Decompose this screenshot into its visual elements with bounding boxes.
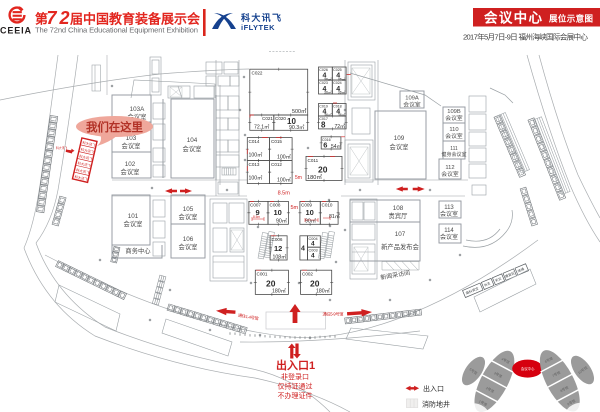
svg-text:103A: 103A — [130, 106, 146, 113]
svg-text:106: 106 — [183, 236, 194, 243]
svg-text:C022: C022 — [252, 71, 263, 76]
svg-text:8.5m: 8.5m — [278, 191, 291, 197]
svg-text:会议室: 会议室 — [440, 233, 458, 241]
svg-text:商务中心: 商务中心 — [125, 246, 151, 255]
svg-text:C010: C010 — [322, 203, 333, 208]
svg-text:36㎡: 36㎡ — [324, 90, 332, 95]
svg-text:10: 10 — [274, 208, 282, 217]
svg-text:2017年5月7日-9日 福州海峡国际会展中心: 2017年5月7日-9日 福州海峡国际会展中心 — [463, 32, 588, 42]
svg-text:康复区: 康复区 — [504, 270, 516, 279]
svg-text:C012: C012 — [271, 162, 282, 167]
svg-text:展位示意图: 展位示意图 — [548, 14, 593, 24]
svg-text:5m: 5m — [295, 175, 302, 181]
svg-text:500㎡: 500㎡ — [292, 107, 307, 115]
svg-text:104: 104 — [187, 137, 198, 144]
svg-text:C009: C009 — [301, 203, 312, 208]
svg-text:113: 113 — [444, 205, 454, 211]
svg-text:10: 10 — [306, 208, 314, 217]
svg-text:105: 105 — [183, 206, 194, 213]
svg-text:180㎡: 180㎡ — [316, 287, 331, 295]
svg-text:非登录口: 非登录口 — [281, 372, 309, 381]
svg-text:4: 4 — [311, 241, 315, 248]
svg-text:会议室: 会议室 — [124, 219, 143, 228]
svg-text:C008: C008 — [270, 203, 281, 208]
svg-text:36㎡: 36㎡ — [338, 112, 346, 117]
svg-text:仅持证通过: 仅持证通过 — [278, 382, 313, 391]
svg-text:36㎡: 36㎡ — [338, 90, 346, 95]
svg-text:112: 112 — [445, 165, 454, 171]
svg-text:8.5m: 8.5m — [253, 215, 260, 219]
svg-text:4: 4 — [311, 253, 315, 260]
svg-text:科大讯飞: 科大讯飞 — [56, 146, 67, 150]
svg-text:100㎡: 100㎡ — [277, 176, 292, 184]
svg-text:54㎡: 54㎡ — [331, 143, 342, 150]
svg-text:会议中心: 会议中心 — [521, 366, 535, 371]
svg-text:180㎡: 180㎡ — [272, 287, 287, 295]
svg-text:会议中心: 会议中心 — [484, 10, 543, 26]
svg-text:72㎡: 72㎡ — [335, 123, 346, 130]
svg-text:C021: C021 — [262, 116, 273, 121]
svg-text:81㎡: 81㎡ — [329, 212, 341, 220]
svg-text:会议室: 会议室 — [445, 114, 463, 122]
svg-text:C007: C007 — [250, 203, 261, 208]
svg-text:180㎡: 180㎡ — [307, 173, 322, 181]
svg-text:C011: C011 — [308, 158, 319, 163]
svg-text:109: 109 — [394, 135, 405, 142]
svg-text:C023: C023 — [319, 81, 328, 85]
svg-text:107: 107 — [395, 231, 406, 238]
svg-text:5m: 5m — [291, 205, 299, 211]
svg-text:消防地井: 消防地井 — [422, 400, 450, 409]
svg-text:4: 4 — [301, 246, 305, 253]
svg-text:The 72nd China Educational Equ: The 72nd China Educational Equipment Exh… — [35, 26, 198, 35]
svg-text:会议室: 会议室 — [440, 210, 458, 218]
svg-text:90㎡: 90㎡ — [305, 217, 317, 225]
svg-text:90.3㎡: 90.3㎡ — [289, 123, 305, 131]
svg-text:C006: C006 — [272, 237, 283, 242]
svg-text:会议室: 会议室 — [179, 212, 198, 221]
svg-text:101: 101 — [128, 213, 139, 220]
svg-text:C015: C015 — [271, 139, 282, 144]
svg-text:健身会议室: 健身会议室 — [441, 151, 466, 158]
svg-text:102: 102 — [125, 161, 136, 168]
svg-text:会议室: 会议室 — [445, 132, 463, 140]
svg-text:会议室: 会议室 — [121, 167, 140, 176]
svg-text:108: 108 — [393, 205, 404, 212]
svg-text:108㎡: 108㎡ — [273, 253, 288, 261]
svg-text:110: 110 — [449, 127, 458, 133]
svg-text:20: 20 — [266, 279, 276, 289]
svg-text:会议室: 会议室 — [183, 144, 202, 153]
svg-text:通往5-9号馆: 通往5-9号馆 — [323, 311, 344, 318]
svg-text:我们在这里: 我们在这里 — [86, 120, 144, 134]
svg-text:8: 8 — [321, 120, 326, 129]
svg-text:不办理证件: 不办理证件 — [278, 391, 313, 400]
svg-text:100㎡: 100㎡ — [277, 153, 292, 161]
svg-text:届中国教育装备展示会: 届中国教育装备展示会 — [70, 12, 201, 27]
svg-text:C024: C024 — [333, 81, 342, 85]
svg-text:114: 114 — [444, 228, 454, 234]
svg-text:100㎡: 100㎡ — [249, 151, 264, 159]
svg-text:C001: C001 — [257, 272, 268, 277]
svg-text:科大讯飞: 科大讯飞 — [241, 12, 281, 23]
svg-text:会议室: 会议室 — [390, 142, 409, 151]
svg-text:会议室: 会议室 — [403, 101, 421, 109]
svg-text:会议室: 会议室 — [441, 170, 459, 178]
svg-text:C002: C002 — [302, 272, 313, 277]
svg-text:出入口: 出入口 — [423, 384, 444, 393]
svg-text:C013: C013 — [249, 162, 260, 167]
svg-text:C014: C014 — [249, 139, 260, 144]
svg-text:贵宾厅: 贵宾厅 — [389, 211, 408, 220]
svg-text:新产品发布会: 新产品发布会 — [381, 242, 419, 251]
svg-text:20: 20 — [318, 165, 328, 175]
svg-text:109A: 109A — [405, 96, 419, 102]
svg-text:通往1-4号馆: 通往1-4号馆 — [237, 312, 259, 323]
svg-text:会议室: 会议室 — [122, 141, 141, 150]
svg-text:6: 6 — [323, 140, 327, 149]
svg-text:CEEIA: CEEIA — [0, 26, 32, 36]
svg-text:iFLYTEK: iFLYTEK — [241, 23, 275, 32]
svg-text:20: 20 — [310, 279, 320, 289]
svg-text:出入口1: 出入口1 — [276, 358, 315, 372]
svg-text:C025: C025 — [333, 68, 342, 72]
svg-text:100㎡: 100㎡ — [249, 174, 264, 182]
svg-text:109B: 109B — [447, 109, 461, 115]
svg-text:会议室: 会议室 — [179, 242, 198, 251]
svg-text:C020: C020 — [275, 116, 286, 121]
svg-text:新闻采访间: 新闻采访间 — [380, 268, 411, 281]
svg-text:12: 12 — [274, 244, 282, 253]
svg-text:90㎡: 90㎡ — [276, 217, 288, 225]
svg-text:C026: C026 — [319, 68, 328, 72]
